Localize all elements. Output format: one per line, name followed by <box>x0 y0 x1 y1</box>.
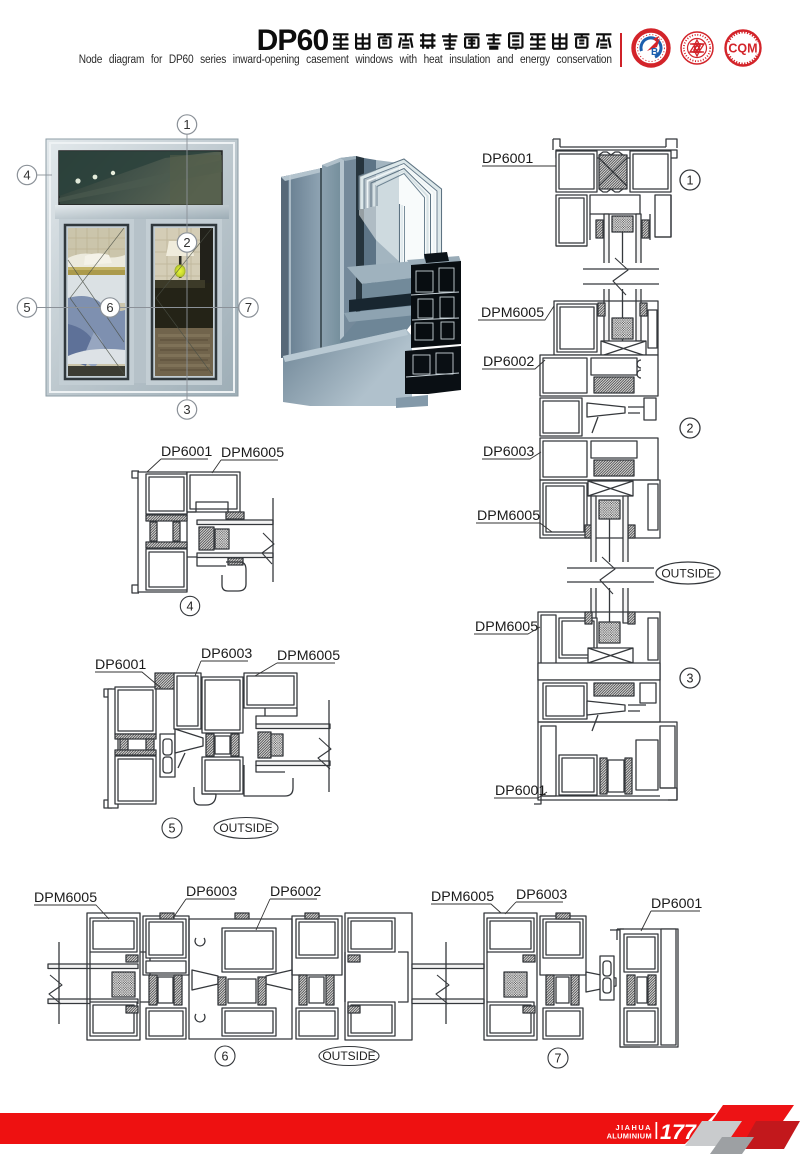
svg-text:6: 6 <box>106 300 113 315</box>
svg-text:DP6001: DP6001 <box>161 444 212 460</box>
svg-text:3: 3 <box>183 402 190 417</box>
svg-text:2: 2 <box>183 235 190 250</box>
svg-text:4: 4 <box>23 168 30 183</box>
svg-text:OUTSIDE: OUTSIDE <box>219 821 272 835</box>
svg-text:1: 1 <box>183 117 190 132</box>
svg-text:DPM6005: DPM6005 <box>34 890 97 906</box>
svg-text:7: 7 <box>245 300 252 315</box>
svg-text:5: 5 <box>23 300 30 315</box>
svg-text:DPM6005: DPM6005 <box>277 648 340 664</box>
svg-text:DPM6005: DPM6005 <box>477 508 540 524</box>
svg-text:DP6001: DP6001 <box>482 151 533 167</box>
svg-text:DP6003: DP6003 <box>516 887 567 903</box>
svg-text:5: 5 <box>169 822 176 836</box>
svg-text:177: 177 <box>660 1120 697 1144</box>
svg-text:DP6003: DP6003 <box>483 444 534 460</box>
svg-text:2: 2 <box>687 422 694 436</box>
svg-text:DP6003: DP6003 <box>201 646 252 662</box>
svg-text:7: 7 <box>555 1052 562 1066</box>
svg-text:DPM6005: DPM6005 <box>481 305 544 321</box>
svg-text:DP6001: DP6001 <box>495 783 546 799</box>
svg-text:OUTSIDE: OUTSIDE <box>322 1049 375 1063</box>
svg-text:ALUMINIUM: ALUMINIUM <box>607 1132 652 1141</box>
svg-text:1: 1 <box>687 174 694 188</box>
svg-text:4: 4 <box>187 600 194 614</box>
svg-text:DP6002: DP6002 <box>270 884 321 900</box>
svg-text:DPM6005: DPM6005 <box>475 619 538 635</box>
svg-text:DPM6005: DPM6005 <box>431 889 494 905</box>
svg-text:OUTSIDE: OUTSIDE <box>661 567 714 581</box>
svg-text:DP6001: DP6001 <box>651 896 702 912</box>
svg-text:DP6002: DP6002 <box>483 354 534 370</box>
svg-text:DPM6005: DPM6005 <box>221 445 284 461</box>
svg-text:3: 3 <box>687 672 694 686</box>
svg-text:6: 6 <box>222 1050 229 1064</box>
svg-text:DP6001: DP6001 <box>95 657 146 673</box>
svg-text:DP6003: DP6003 <box>186 884 237 900</box>
